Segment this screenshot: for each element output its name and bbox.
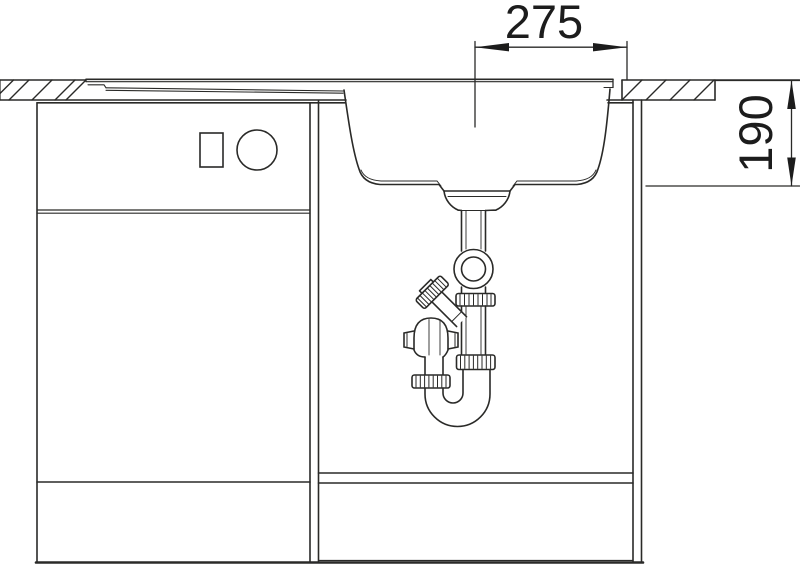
overflow-ring-fitting bbox=[454, 250, 493, 289]
appliance-controls bbox=[200, 130, 277, 170]
union-nut-left bbox=[412, 375, 450, 388]
tailpipe bbox=[462, 211, 486, 252]
drain-flange bbox=[444, 191, 510, 211]
cabinet-left-front bbox=[37, 130, 310, 482]
arrowhead-right bbox=[593, 43, 627, 51]
cabinet-carcass bbox=[0, 100, 642, 562]
drain-pipe bbox=[462, 306, 486, 355]
hatch-right bbox=[622, 80, 714, 100]
arrowhead-down bbox=[787, 158, 796, 187]
sink-rim bbox=[86, 79, 613, 93]
outlet-elbow-fitting bbox=[404, 318, 458, 357]
control-window bbox=[200, 133, 223, 167]
dimension-horizontal-value: 275 bbox=[505, 0, 583, 48]
dimension-vertical: 190 bbox=[646, 81, 800, 187]
union-nut-right bbox=[457, 355, 496, 370]
arrowhead-up bbox=[787, 81, 796, 110]
drain-trap-assembly bbox=[404, 191, 510, 427]
union-nut-top bbox=[456, 294, 495, 307]
sink-bowl bbox=[344, 89, 610, 191]
dimension-horizontal: 275 bbox=[475, 0, 627, 127]
control-knob bbox=[237, 130, 277, 170]
technical-drawing: 275 190 bbox=[0, 0, 800, 564]
arrowhead-left bbox=[475, 43, 509, 51]
cabinet-right-front bbox=[319, 473, 634, 561]
drawing-canvas: 275 190 bbox=[0, 0, 800, 564]
dimension-vertical-value: 190 bbox=[729, 94, 782, 172]
hatch-left bbox=[0, 80, 86, 100]
